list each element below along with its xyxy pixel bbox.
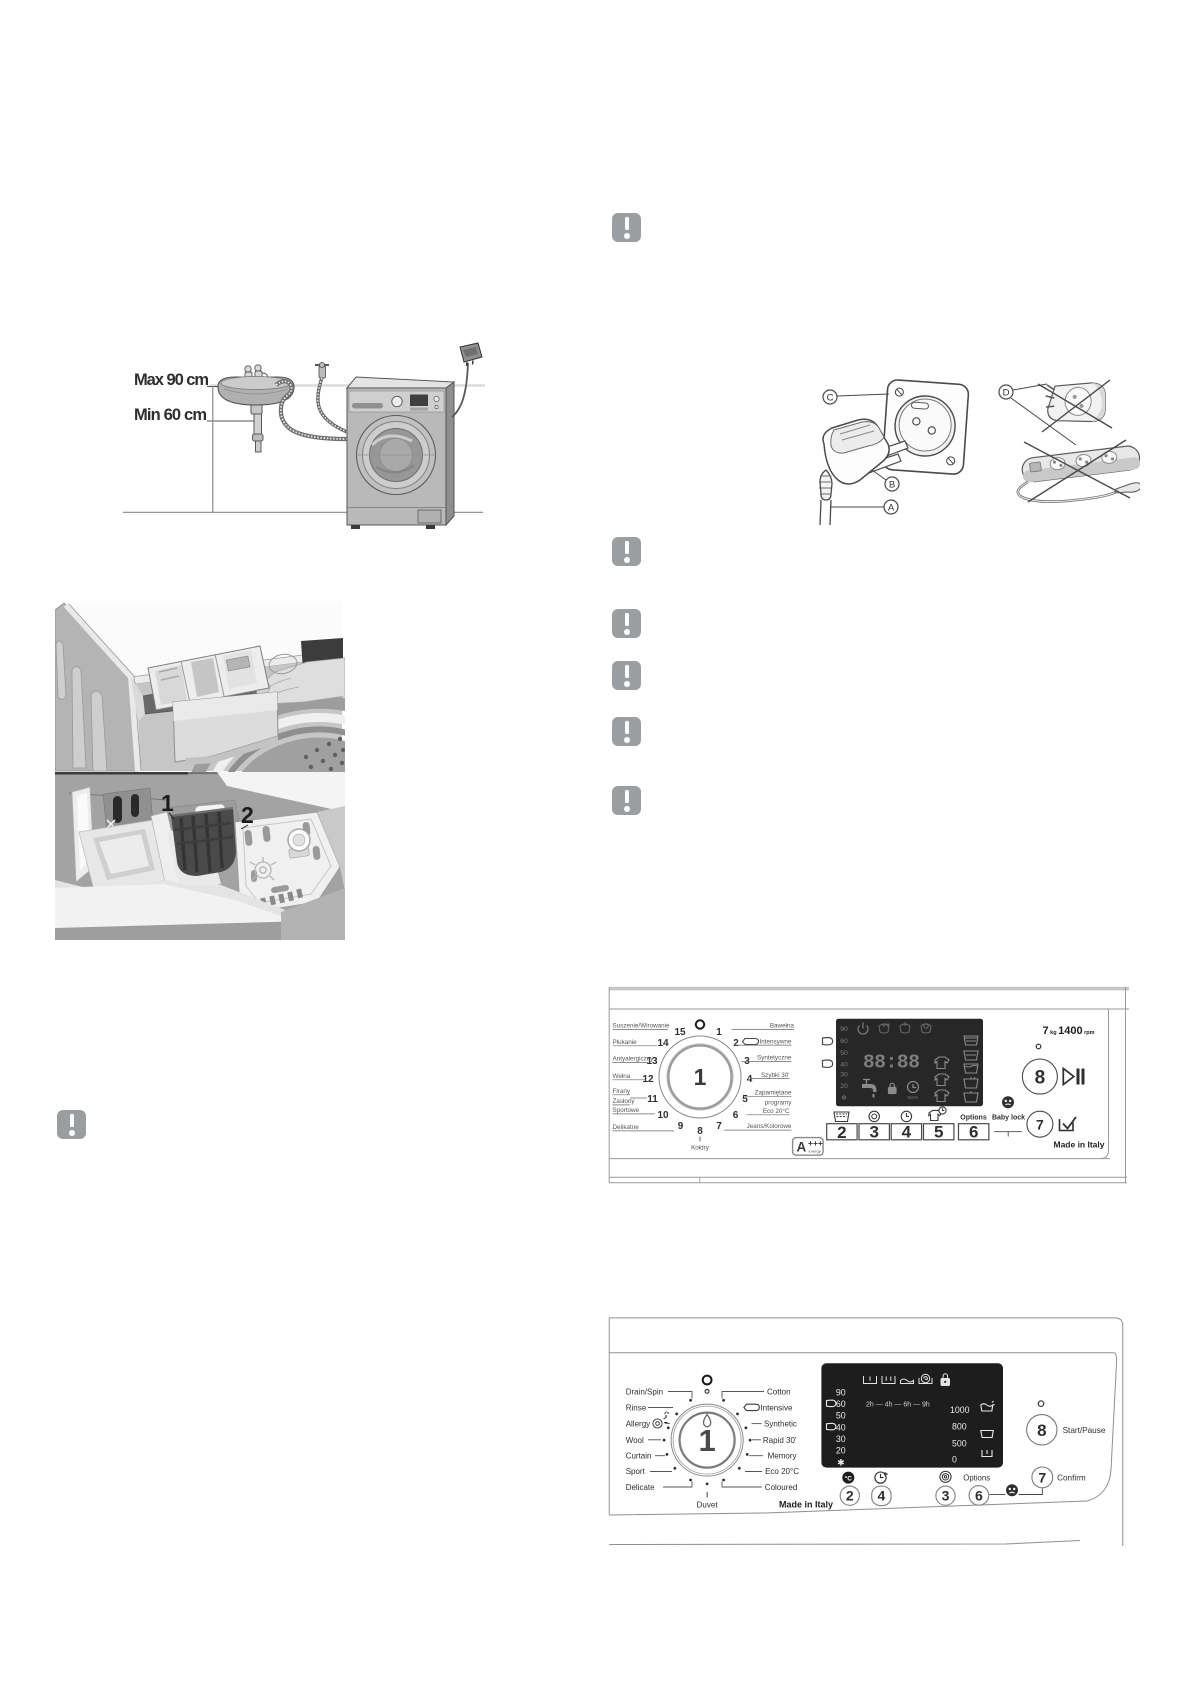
svg-text:energy: energy [809, 1149, 821, 1154]
svg-text:°C: °C [845, 1475, 853, 1483]
svg-text:50: 50 [840, 1050, 848, 1057]
svg-text:Sportowe: Sportowe [613, 1107, 640, 1114]
svg-text:5: 5 [934, 1123, 943, 1142]
svg-text:40: 40 [840, 1062, 848, 1069]
svg-text:Allergy: Allergy [626, 1420, 650, 1429]
svg-text:Zasłony: Zasłony [613, 1098, 636, 1105]
svg-text:Max 90 cm: Max 90 cm [134, 371, 209, 389]
svg-text:Jeans/Kolorowe: Jeans/Kolorowe [747, 1123, 792, 1130]
svg-text:Syntetyczne: Syntetyczne [757, 1054, 792, 1061]
svg-text:Wool: Wool [626, 1436, 644, 1445]
svg-text:2: 2 [837, 1123, 846, 1142]
svg-text:2: 2 [241, 802, 254, 828]
svg-text:90: 90 [840, 1026, 848, 1033]
svg-text:30: 30 [840, 1072, 848, 1079]
svg-text:800: 800 [952, 1422, 967, 1432]
svg-text:Synthetic: Synthetic [764, 1420, 797, 1429]
svg-text:2: 2 [846, 1488, 854, 1504]
svg-text:7: 7 [1036, 1117, 1044, 1133]
svg-text:1: 1 [694, 1064, 707, 1090]
svg-text:1: 1 [698, 1423, 715, 1458]
svg-text:6: 6 [733, 1110, 739, 1121]
svg-text:programy: programy [765, 1100, 792, 1107]
svg-text:5: 5 [742, 1094, 748, 1105]
svg-text:Sport: Sport [626, 1467, 646, 1476]
svg-text:Rapid 30': Rapid 30' [763, 1436, 797, 1445]
svg-text:Options: Options [960, 1115, 987, 1122]
svg-text:Delikatne: Delikatne [613, 1124, 640, 1131]
svg-text:Opóźn.: Opóźn. [907, 1096, 919, 1100]
svg-text:Delicate: Delicate [626, 1483, 655, 1492]
svg-text:7 kg 1400 rpm: 7 kg 1400 rpm [1043, 1025, 1095, 1037]
svg-text:Eco 20°C: Eco 20°C [763, 1107, 790, 1115]
svg-text:60: 60 [840, 1038, 848, 1045]
svg-text:Płukanie: Płukanie [613, 1039, 638, 1046]
svg-text:11: 11 [647, 1094, 658, 1105]
svg-text:2: 2 [733, 1038, 739, 1049]
svg-text:20: 20 [836, 1446, 846, 1456]
svg-text:3: 3 [942, 1488, 950, 1504]
svg-text:500: 500 [952, 1439, 967, 1449]
svg-text:Made in Italy: Made in Italy [1053, 1140, 1104, 1150]
svg-text:50: 50 [836, 1411, 846, 1421]
svg-text:1: 1 [161, 790, 174, 816]
svg-text:B: B [889, 480, 895, 491]
svg-text:10: 10 [657, 1110, 669, 1121]
svg-text:Firany: Firany [613, 1088, 631, 1095]
svg-text:20: 20 [840, 1083, 848, 1090]
svg-text:6: 6 [975, 1488, 983, 1504]
svg-text:1000: 1000 [950, 1405, 970, 1415]
svg-text:Made in Italy: Made in Italy [779, 1500, 833, 1510]
svg-text:Duvet: Duvet [697, 1501, 719, 1510]
svg-text:4: 4 [878, 1488, 886, 1504]
svg-text:Options: Options [963, 1473, 990, 1482]
svg-text:Cotton: Cotton [767, 1388, 791, 1397]
svg-text:❄: ❄ [841, 1094, 847, 1102]
svg-text:Curtain: Curtain [626, 1452, 652, 1461]
svg-text:Coloured: Coloured [765, 1483, 797, 1492]
svg-text:3: 3 [869, 1123, 878, 1142]
svg-text:7: 7 [716, 1121, 722, 1132]
svg-text:Kołdry: Kołdry [691, 1145, 710, 1152]
svg-text:Start/Pause: Start/Pause [1063, 1426, 1106, 1435]
svg-text:Confirm: Confirm [1057, 1474, 1086, 1483]
svg-text:Intensywne: Intensywne [760, 1039, 792, 1046]
svg-text:D: D [1003, 388, 1010, 399]
svg-text:30: 30 [836, 1434, 846, 1444]
svg-text:Min 60 cm: Min 60 cm [134, 406, 207, 424]
svg-text:4: 4 [902, 1123, 912, 1142]
svg-text:+++: +++ [808, 1138, 823, 1148]
svg-text:Memory: Memory [768, 1452, 797, 1461]
svg-text:15: 15 [674, 1027, 686, 1038]
svg-text:1: 1 [716, 1027, 722, 1038]
svg-text:Rinse: Rinse [626, 1404, 647, 1413]
svg-text:0: 0 [952, 1455, 957, 1465]
svg-text:Intensive: Intensive [760, 1404, 793, 1413]
svg-text:Bawełna: Bawełna [770, 1023, 795, 1030]
svg-text:Suszenie/Wirowanie: Suszenie/Wirowanie [613, 1023, 671, 1030]
svg-text:90: 90 [836, 1388, 846, 1398]
svg-text:✱: ✱ [837, 1458, 844, 1468]
svg-text:8: 8 [1037, 1421, 1046, 1440]
svg-text:C: C [827, 393, 834, 404]
svg-text:Wełna: Wełna [613, 1073, 631, 1080]
svg-text:40: 40 [836, 1422, 846, 1432]
svg-text:9: 9 [678, 1121, 684, 1132]
svg-text:8: 8 [697, 1126, 703, 1137]
svg-text:Drain/Spin: Drain/Spin [626, 1388, 663, 1397]
svg-text:Zapamiętane: Zapamiętane [755, 1089, 792, 1096]
svg-text:A: A [797, 1140, 807, 1155]
svg-text:2h — 4h — 6h — 9h: 2h — 4h — 6h — 9h [866, 1402, 930, 1409]
svg-text:Baby lock: Baby lock [992, 1115, 1025, 1122]
svg-text:14: 14 [657, 1038, 669, 1049]
svg-text:8: 8 [1035, 1068, 1046, 1089]
svg-text:7: 7 [1038, 1469, 1046, 1485]
svg-text:A: A [888, 503, 895, 514]
svg-text:Szybki 30': Szybki 30' [761, 1072, 790, 1079]
svg-text:60: 60 [836, 1399, 846, 1409]
svg-text:Antyalergiczny: Antyalergiczny [613, 1056, 655, 1063]
svg-text:4: 4 [747, 1074, 753, 1085]
svg-text:88:88: 88:88 [863, 1052, 920, 1074]
svg-text:6: 6 [969, 1123, 978, 1142]
svg-text:Eco 20°C: Eco 20°C [765, 1467, 799, 1476]
